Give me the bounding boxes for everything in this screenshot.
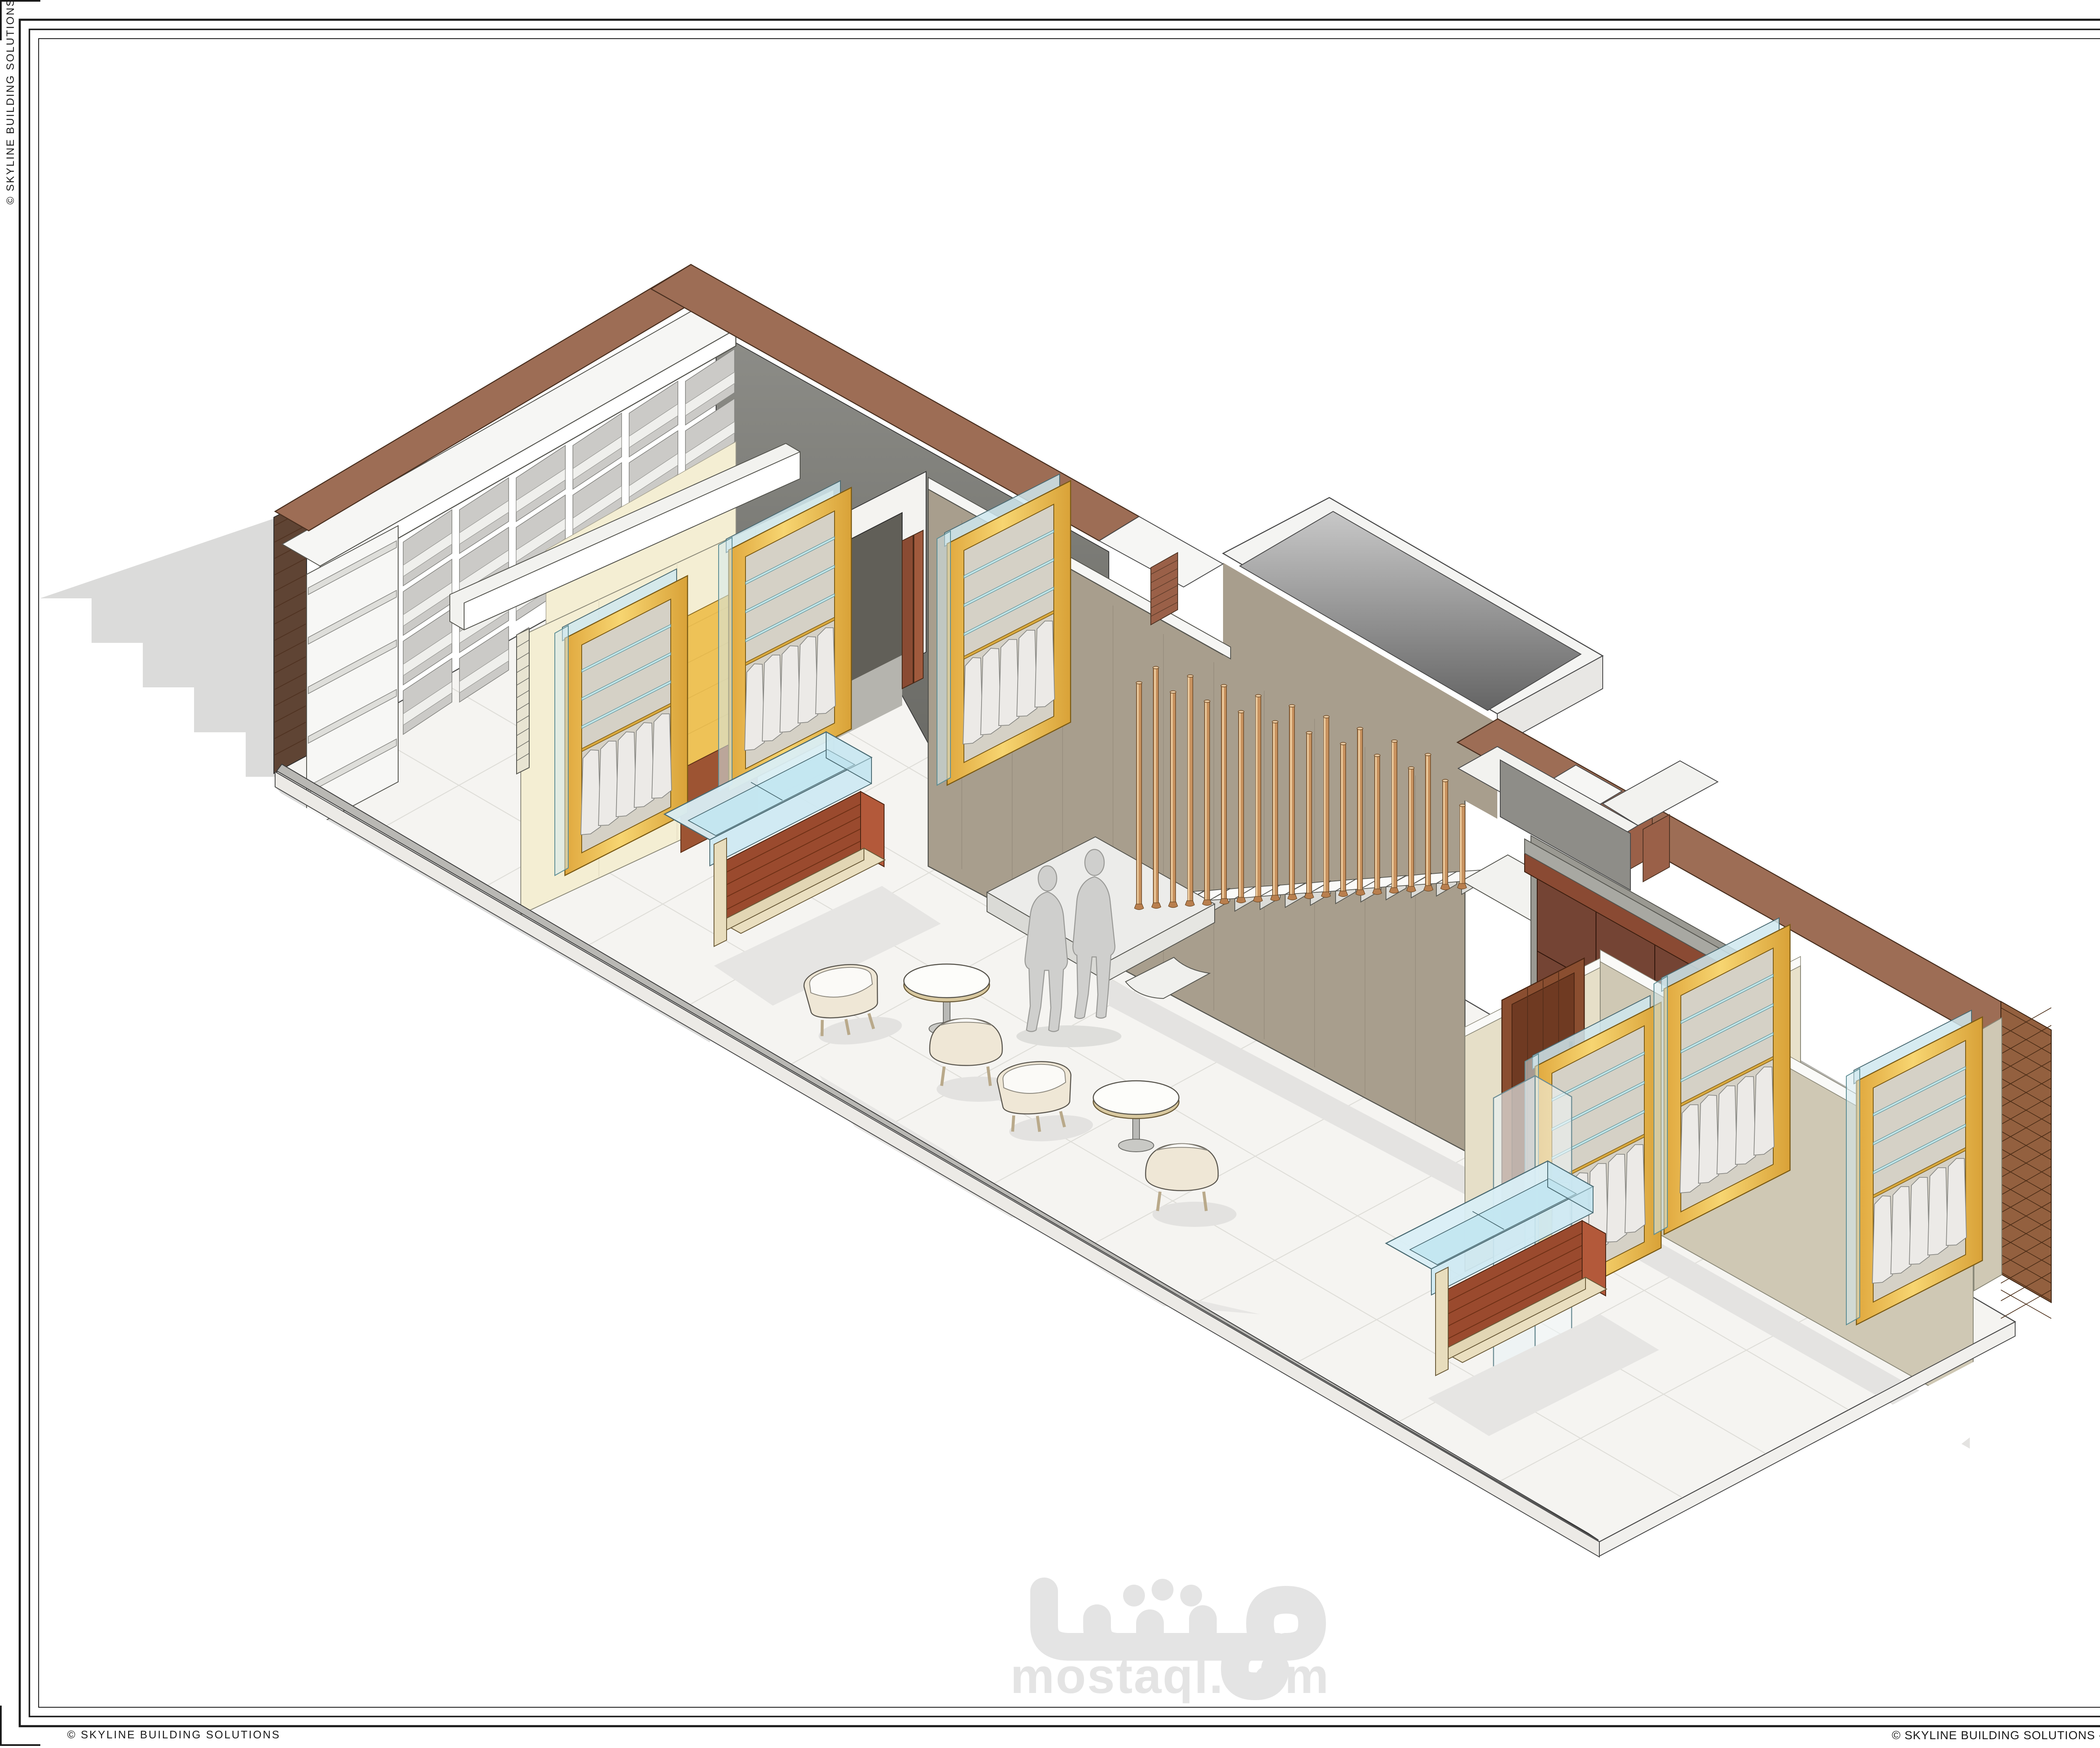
svg-text:mostaql.com: mostaql.com [1011, 1648, 1330, 1704]
svg-text:© SKYLINE BUILDING SOLUTIONS: © SKYLINE BUILDING SOLUTIONS [5, 0, 16, 204]
svg-text:© SKYLINE BUILDING SOLUTIONS: © SKYLINE BUILDING SOLUTIONS [67, 1728, 281, 1741]
svg-text:© SKYLINE BUILDING SOLUTIONS: © SKYLINE BUILDING SOLUTIONS - Email: mu… [1892, 1729, 2100, 1742]
